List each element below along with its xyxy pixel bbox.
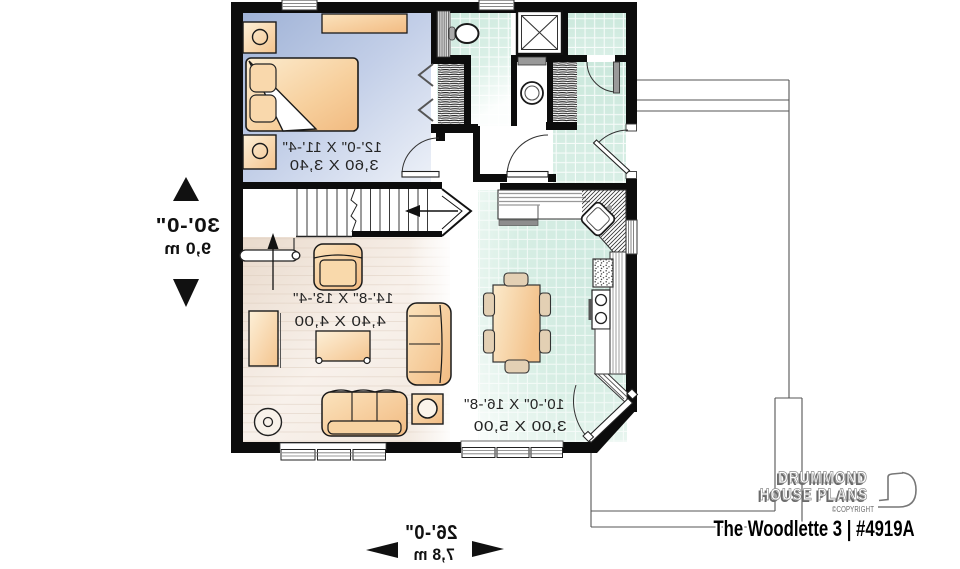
svg-text:3,60 X 3,40: 3,60 X 3,40 — [289, 158, 378, 174]
svg-text:14'-8" X 13'-4": 14'-8" X 13'-4" — [293, 290, 394, 307]
svg-text:9,0 m: 9,0 m — [164, 239, 211, 258]
svg-text:12'-0" X 11'-4": 12'-0" X 11'-4" — [282, 139, 382, 156]
svg-text:10'-0" X 16'-8": 10'-0" X 16'-8" — [464, 396, 565, 413]
svg-text:3,00 X 5,00: 3,00 X 5,00 — [473, 418, 566, 435]
svg-text:30'-0": 30'-0" — [155, 214, 220, 236]
svg-text:DRUMMOND: DRUMMOND — [778, 469, 868, 488]
svg-text:7,8 m: 7,8 m — [413, 546, 454, 564]
svg-text:26'-0": 26'-0" — [405, 522, 458, 544]
svg-text:HOUSE PLANS: HOUSE PLANS — [760, 486, 868, 505]
svg-text:4,40 X 4,00: 4,40 X 4,00 — [294, 314, 386, 330]
svg-text:The Woodlette 3 | #4919A: The Woodlette 3 | #4919A — [713, 517, 914, 542]
svg-text:©COPYRIGHT: ©COPYRIGHT — [832, 505, 875, 514]
